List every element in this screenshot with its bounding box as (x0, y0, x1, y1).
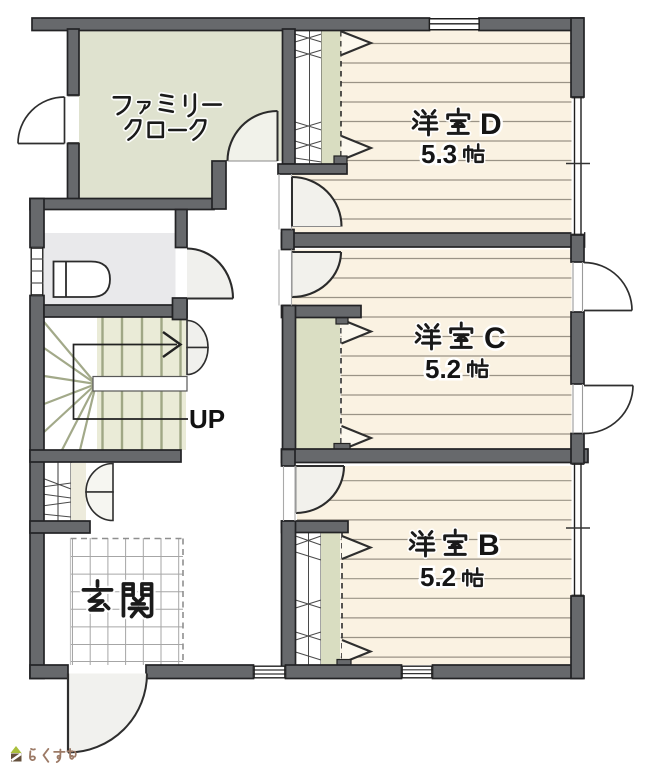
svg-text:B: B (478, 529, 500, 562)
svg-text:UP: UP (189, 404, 225, 434)
svg-text:5.2: 5.2 (425, 354, 461, 384)
svg-text:C: C (484, 322, 506, 355)
svg-text:5.3: 5.3 (421, 139, 457, 169)
svg-text:5.2: 5.2 (420, 562, 456, 592)
svg-text:D: D (480, 108, 502, 141)
